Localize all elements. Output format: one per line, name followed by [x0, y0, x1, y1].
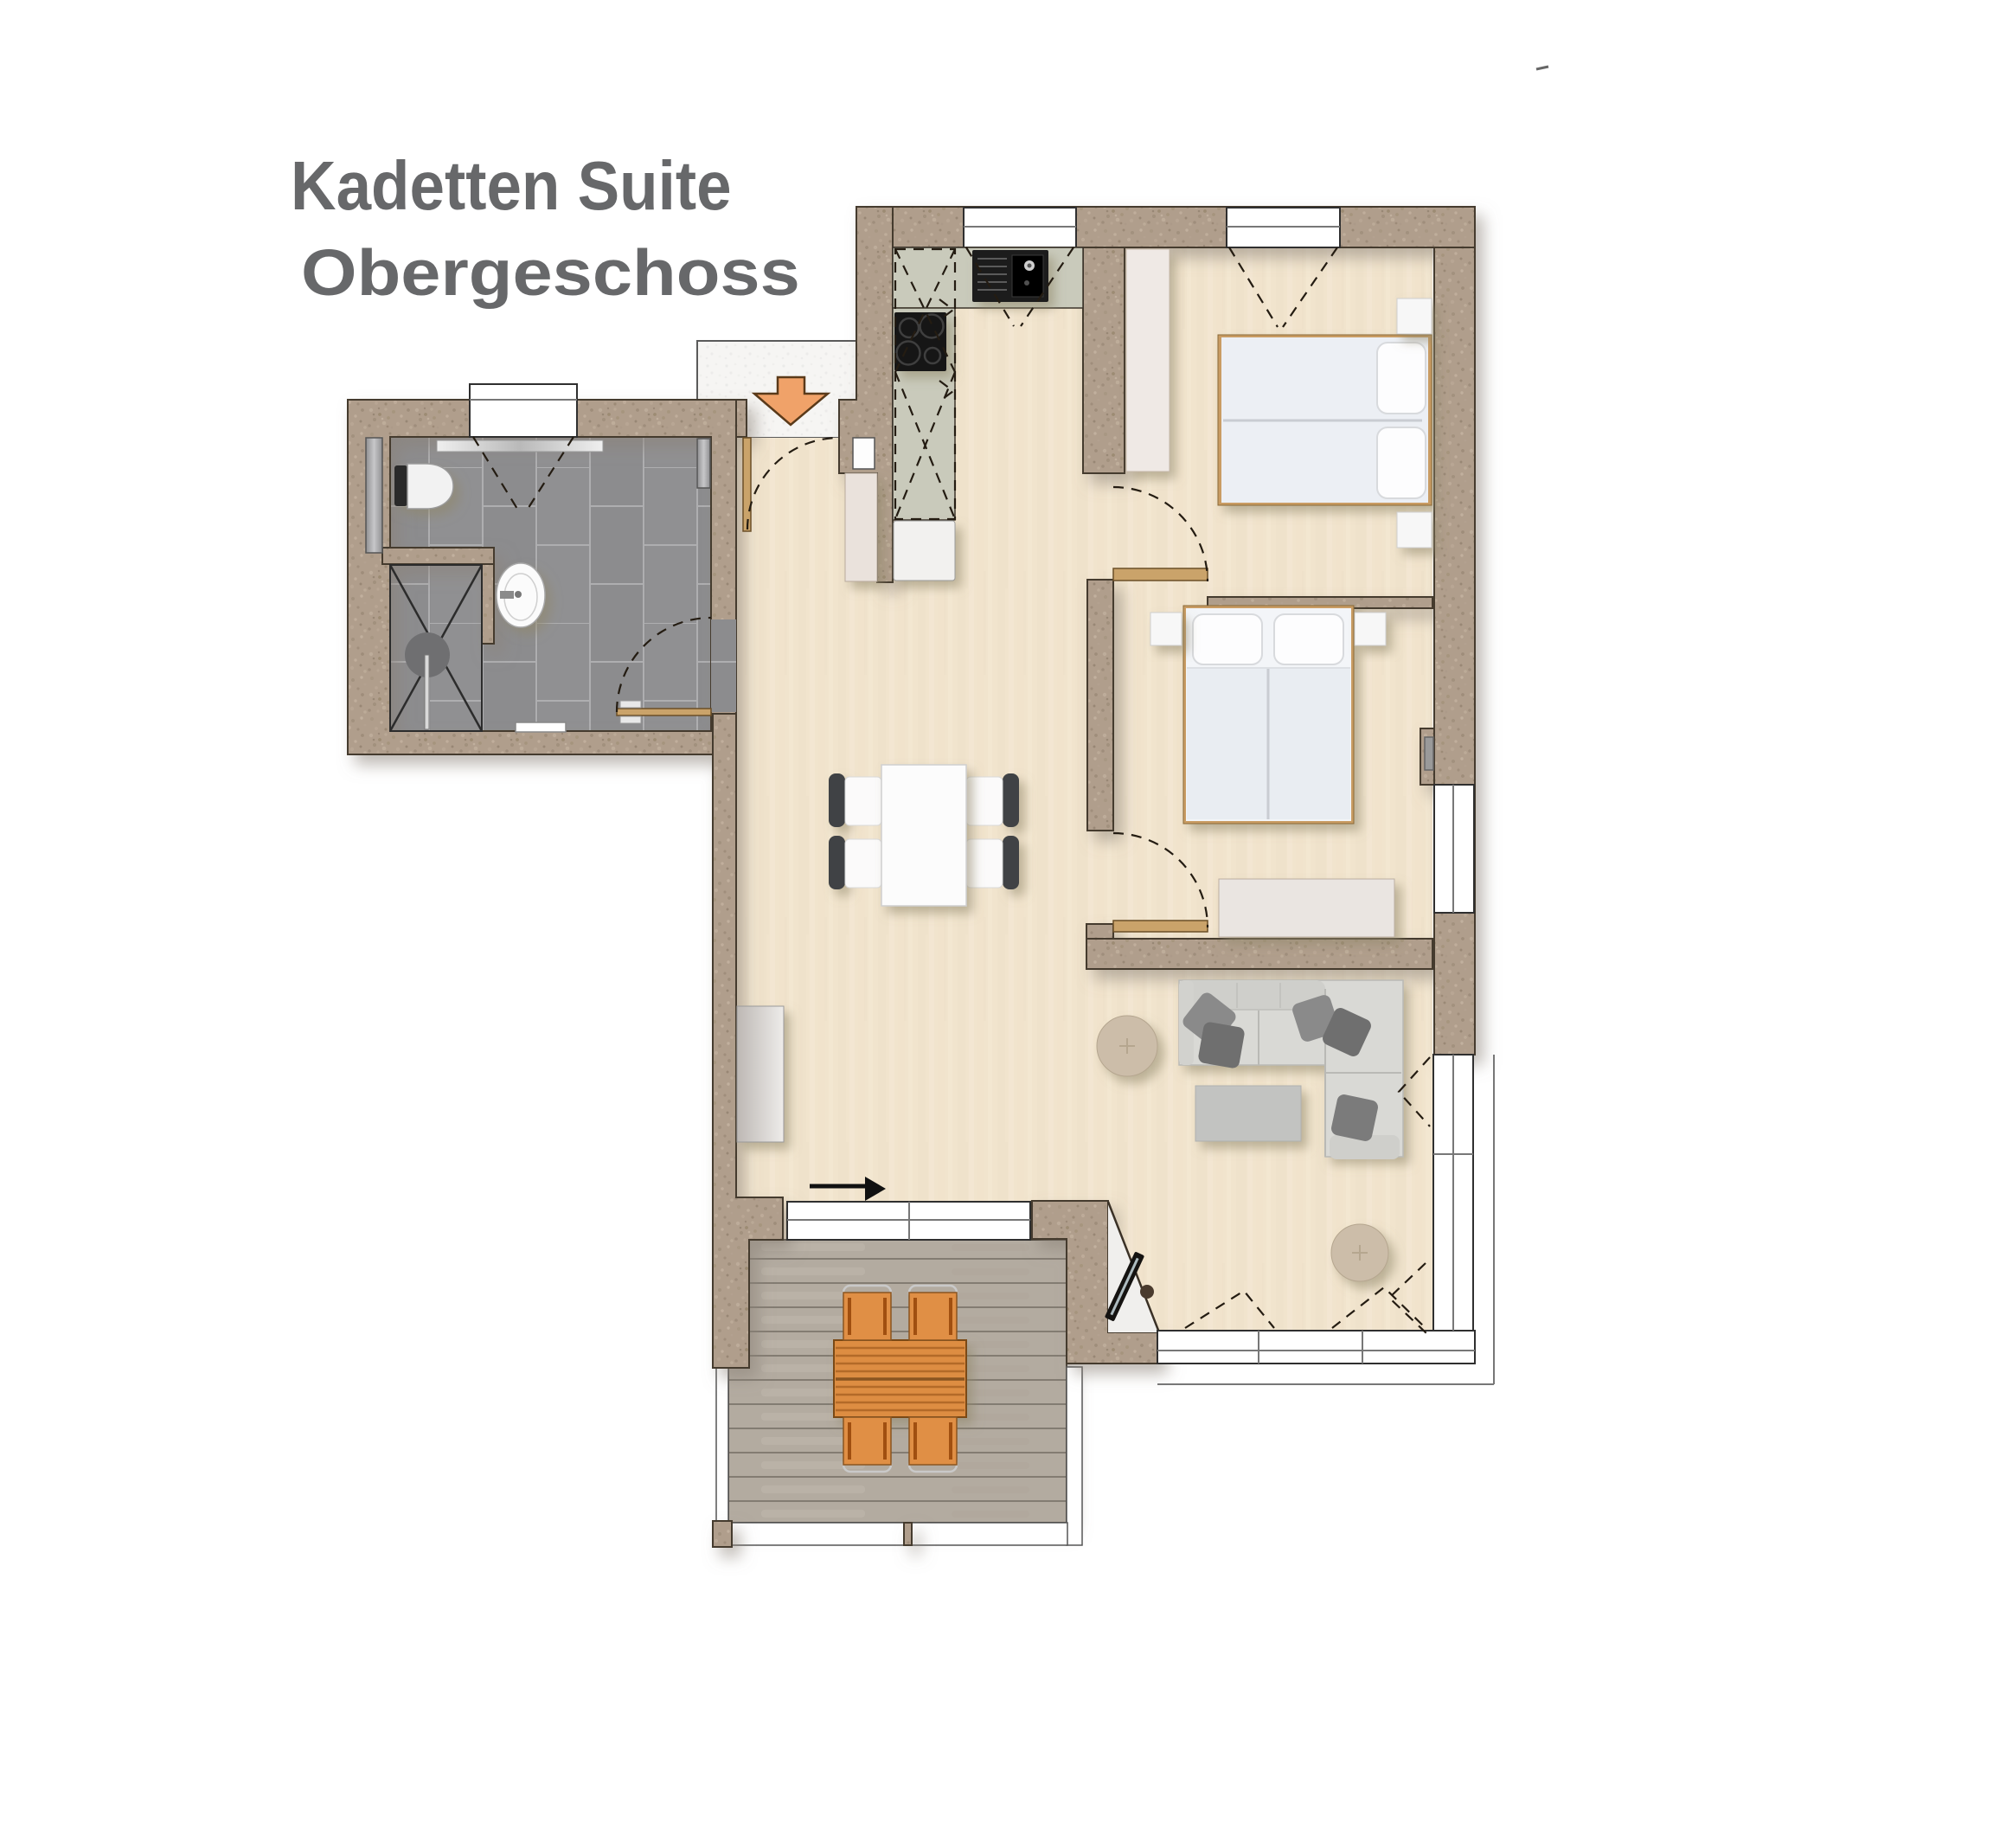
svg-text:Kadetten Suite: Kadetten Suite [291, 148, 732, 225]
svg-text:Obergeschoss: Obergeschoss [301, 236, 800, 309]
